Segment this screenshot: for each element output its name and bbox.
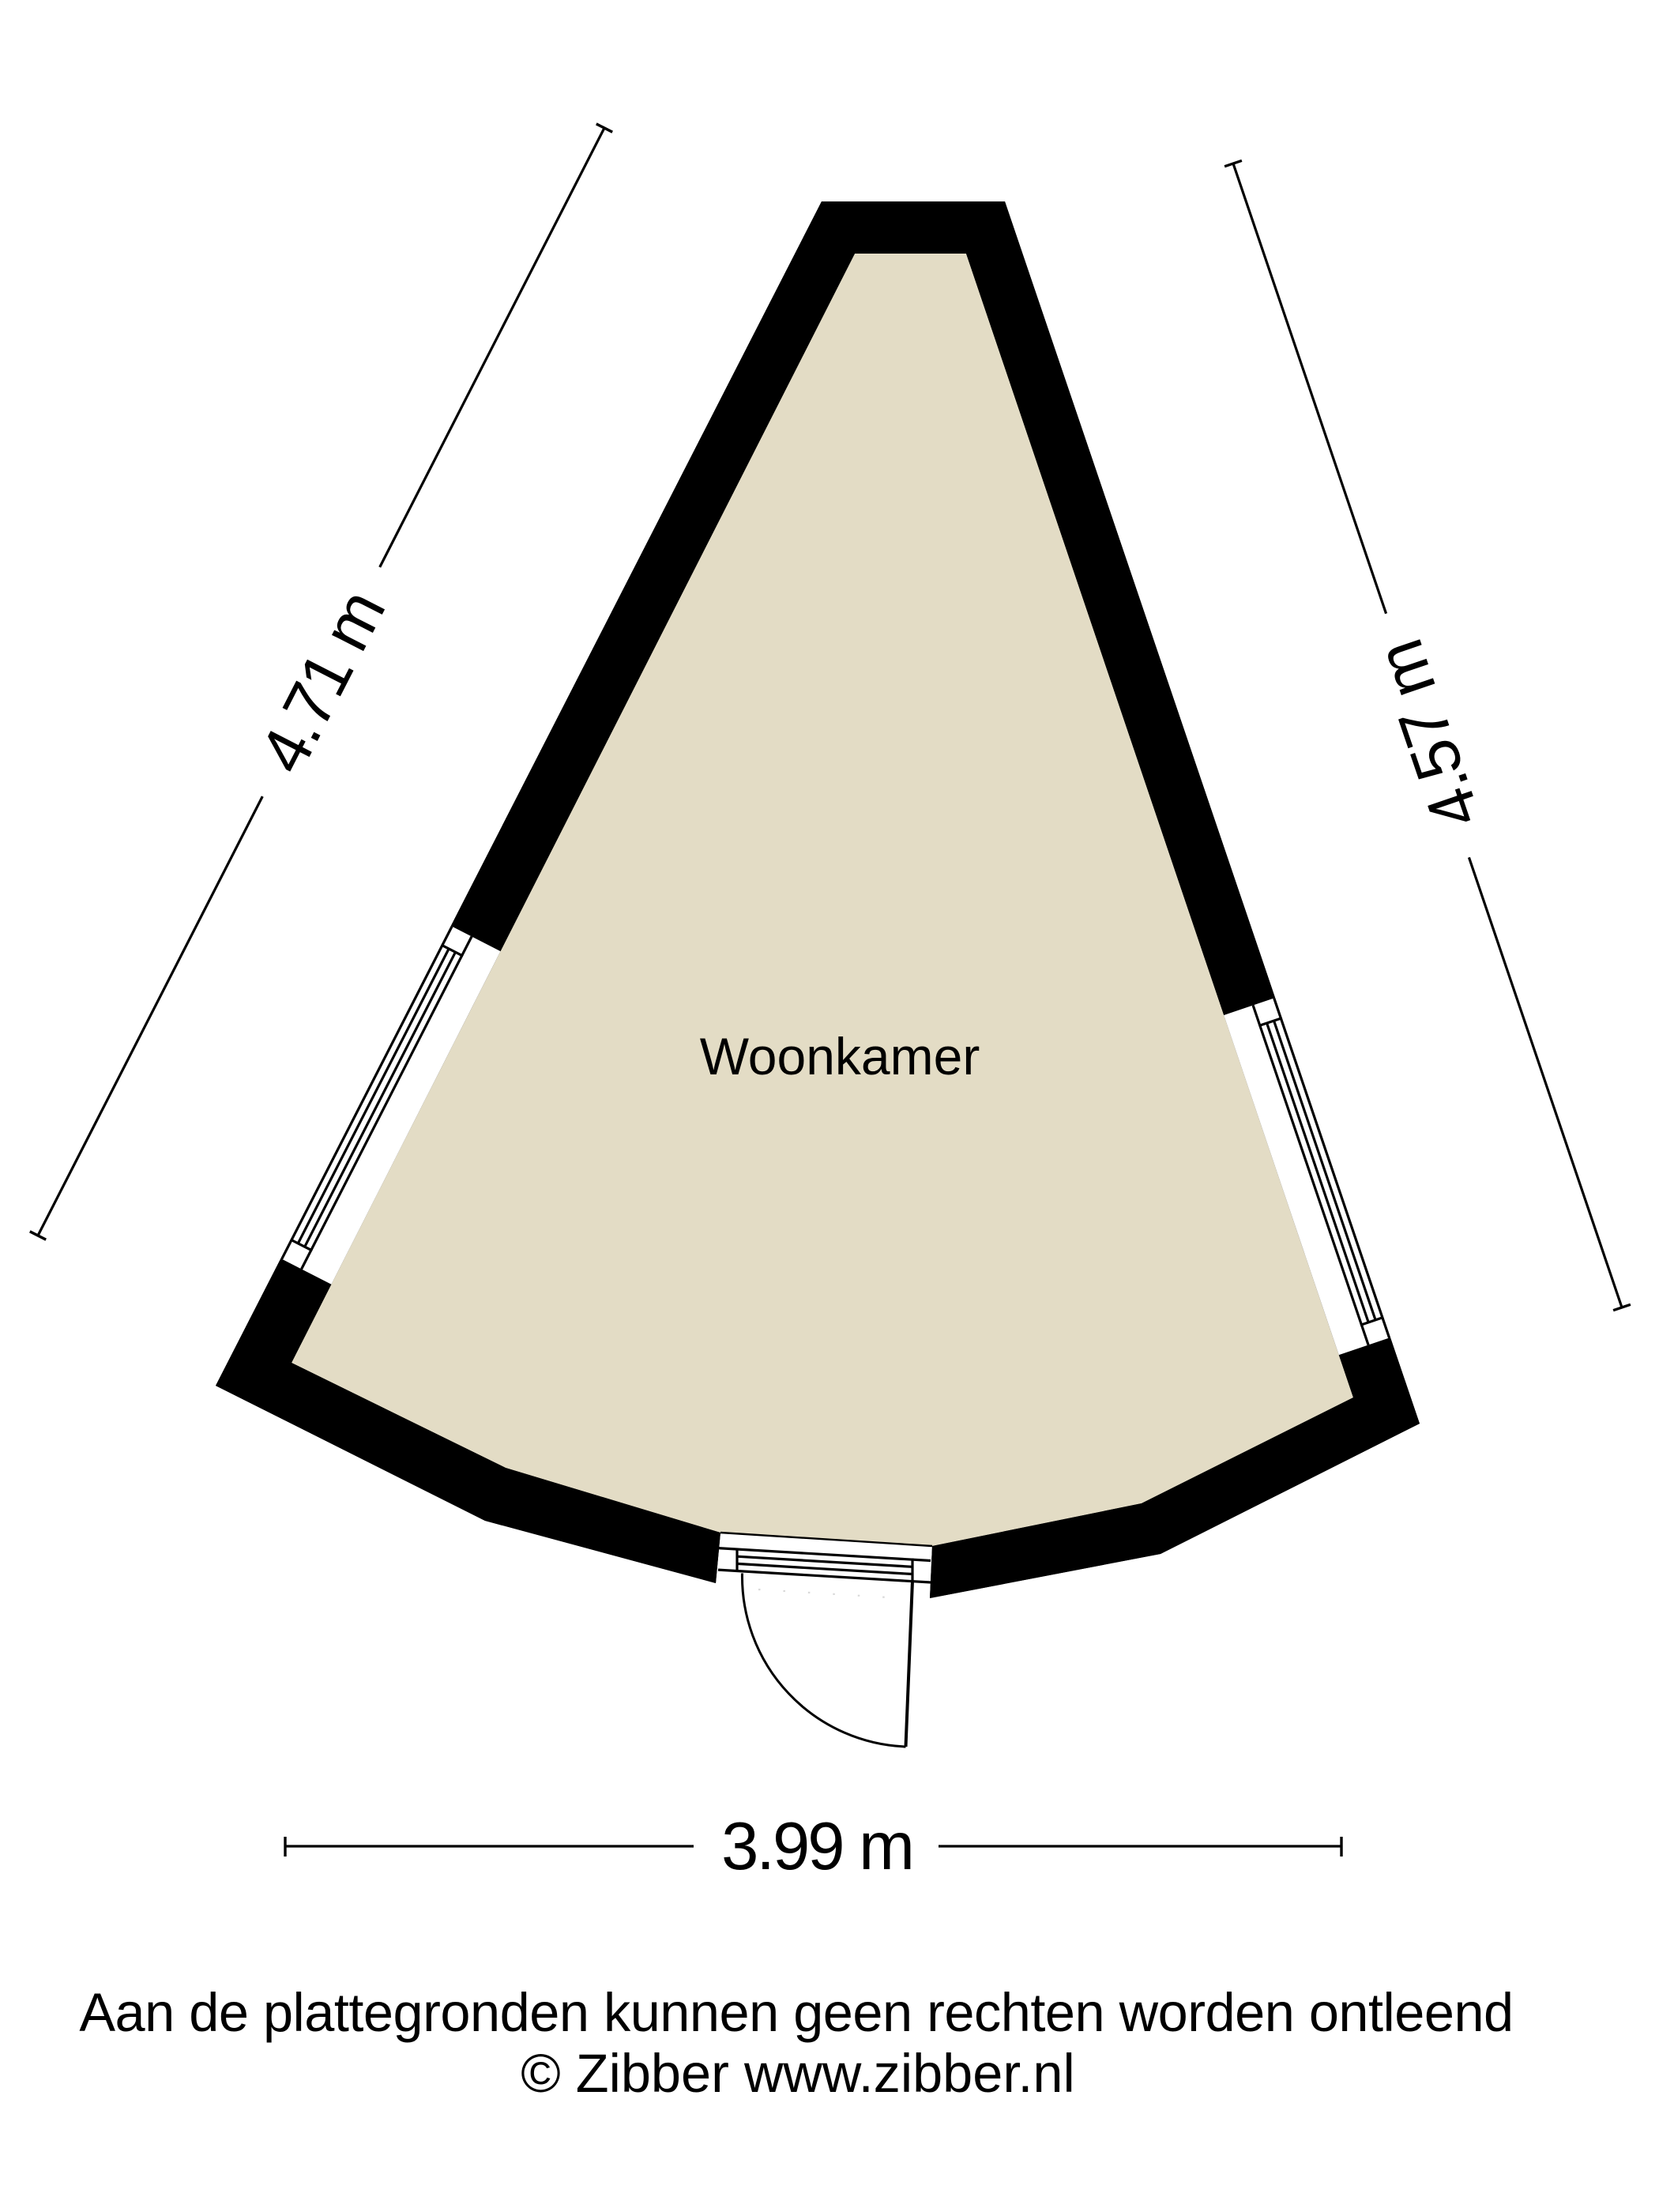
svg-text:Aan de plattegronden kunnen ge: Aan de plattegronden kunnen geen rechten…	[79, 1982, 1513, 2043]
svg-text:© Zibber www.zibber.nl: © Zibber www.zibber.nl	[521, 2043, 1075, 2104]
svg-text:3.99 m: 3.99 m	[721, 1809, 912, 1884]
svg-text:Woonkamer: Woonkamer	[700, 1027, 980, 1085]
